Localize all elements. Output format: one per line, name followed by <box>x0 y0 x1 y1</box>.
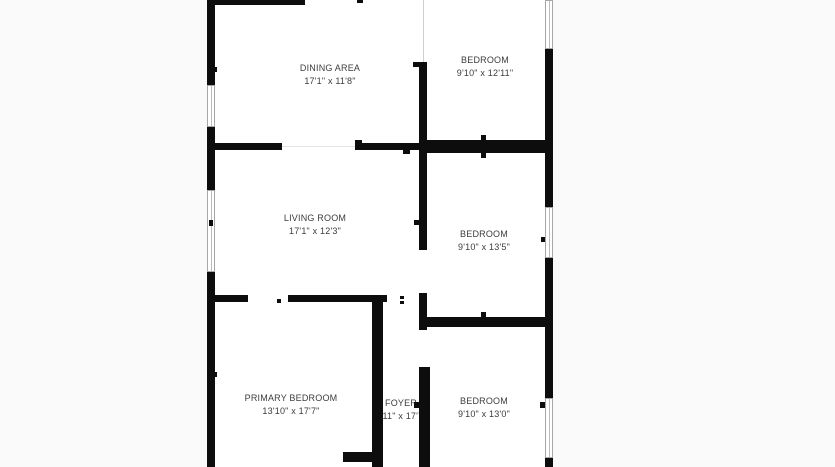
room-label-bedroom-middle: BEDROOM 9'10" x 13'5" <box>458 228 510 254</box>
wall-frame-tick <box>213 67 217 72</box>
opening-dot <box>400 301 404 304</box>
wall-exterior-top-stub <box>357 0 363 3</box>
wall-foyer-bedroom <box>419 367 430 467</box>
wall-exterior-right-upper <box>545 49 553 207</box>
wall-dining-living-right <box>355 143 419 150</box>
opening-line-dining-bedroom <box>423 0 424 62</box>
wall-primary-closet-stub <box>343 452 383 462</box>
wall-primary-foyer <box>372 295 383 467</box>
room-dimensions: 17'1" x 12'3" <box>284 225 346 238</box>
window-pane <box>211 86 212 126</box>
window-pane <box>211 191 212 271</box>
window-left-dining <box>207 85 215 127</box>
wall-bedrooms-divider-lower <box>419 317 553 327</box>
window-right-bedroom-top <box>545 0 553 49</box>
window-pane <box>549 399 550 457</box>
room-dimensions: 9'10" x 13'5" <box>458 241 510 254</box>
wall-frame-tick <box>213 372 217 377</box>
wall-dining-living-left <box>213 143 282 150</box>
window-right-bedroom-bottom <box>545 398 553 458</box>
room-label-bedroom-top: BEDROOM 9'10" x 12'11" <box>457 54 514 80</box>
room-label-living-room: LIVING ROOM 17'1" x 12'3" <box>284 212 346 238</box>
wall-exterior-left-mid <box>207 127 215 190</box>
room-dimensions: 9'10" x 13'0" <box>458 408 510 421</box>
window-right-bedroom-middle <box>545 207 553 258</box>
wall-exterior-left-upper <box>207 0 215 85</box>
doorframe-tick <box>414 220 419 225</box>
opening-threshold-line <box>282 146 355 147</box>
wall-center-tick <box>481 153 486 158</box>
doorframe-tick <box>355 140 362 143</box>
window-pane <box>549 1 550 48</box>
room-label-bedroom-bottom: BEDROOM 9'10" x 13'0" <box>458 395 510 421</box>
opening-dot <box>400 296 404 299</box>
wall-exterior-top <box>207 0 305 5</box>
room-name: BEDROOM <box>458 395 510 408</box>
wall-bedrooms-divider-upper <box>419 140 553 153</box>
door-dot <box>277 299 281 303</box>
doorframe-tick <box>414 402 419 408</box>
window-center-tick <box>540 402 545 408</box>
wall-exterior-right-mid <box>545 258 553 398</box>
wall-center-tick <box>481 135 486 140</box>
doorframe-tick <box>403 150 410 154</box>
room-dimensions: 9'10" x 12'11" <box>457 67 514 80</box>
window-pane <box>549 208 550 257</box>
room-name: BEDROOM <box>458 228 510 241</box>
room-label-primary-bedroom: PRIMARY BEDROOM 13'10" x 17'7" <box>245 392 338 418</box>
wall-living-bedroom-upper <box>419 153 427 250</box>
room-name: DINING AREA <box>300 62 360 75</box>
room-name: LIVING ROOM <box>284 212 346 225</box>
room-name: PRIMARY BEDROOM <box>245 392 338 405</box>
wall-exterior-right-lower <box>545 458 553 467</box>
room-label-dining-area: DINING AREA 17'1" x 11'8" <box>300 62 360 88</box>
room-dimensions: 13'10" x 17'7" <box>245 405 338 418</box>
window-center-tick <box>209 220 213 226</box>
doorframe-tick <box>413 62 419 67</box>
window-center-tick <box>541 237 545 242</box>
floorplan-canvas: DINING AREA 17'1" x 11'8" BEDROOM 9'10" … <box>0 0 835 467</box>
window-left-living <box>207 190 215 272</box>
wall-living-primary-left <box>213 295 248 302</box>
wall-center-tick <box>481 312 486 317</box>
room-name: BEDROOM <box>457 54 514 67</box>
room-dimensions: 17'1" x 11'8" <box>300 75 360 88</box>
